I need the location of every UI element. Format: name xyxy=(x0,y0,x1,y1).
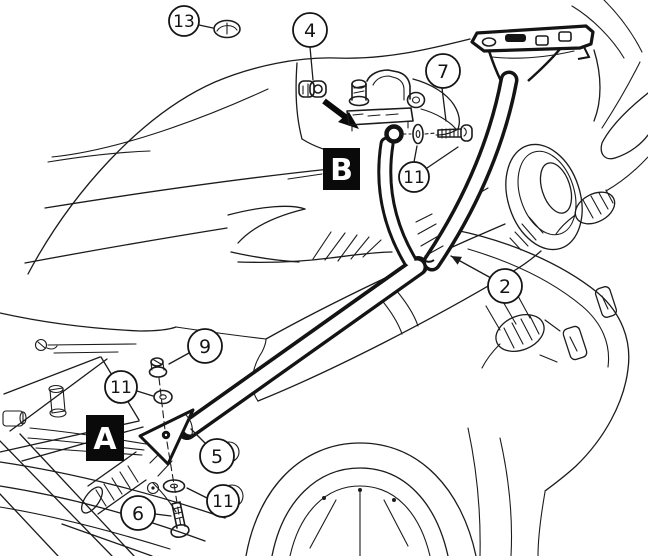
rack-funnel xyxy=(528,49,560,81)
marker-a-label: A xyxy=(93,422,117,457)
arm-eyelet xyxy=(387,127,402,142)
turn-signal xyxy=(490,308,549,358)
clamp-cylinder xyxy=(408,93,425,108)
diagram-page: 13471129115116AB xyxy=(0,0,648,556)
leader-line xyxy=(187,488,207,498)
callout-9-label: 9 xyxy=(199,336,211,358)
frame-lug xyxy=(421,109,458,135)
fender-tip xyxy=(601,93,648,159)
fender-inner-edge xyxy=(468,249,609,367)
leader-line xyxy=(414,146,417,162)
reflector xyxy=(594,285,618,318)
bolt-shaft xyxy=(172,502,185,528)
bracket-connector xyxy=(540,320,560,362)
rim-hole xyxy=(322,496,326,500)
tail-side-line xyxy=(288,174,322,179)
leader-line xyxy=(169,353,189,364)
short-line xyxy=(48,344,136,345)
clamp-strap-inner xyxy=(373,76,404,100)
washer xyxy=(413,125,423,144)
rack-rear-arm-fill xyxy=(432,80,509,262)
panel-top-line xyxy=(45,169,330,208)
callout-13-label: 13 xyxy=(173,12,195,32)
turn-signal-hatch xyxy=(583,190,613,218)
marker-b-label: B xyxy=(330,153,353,188)
tail-right-line xyxy=(606,157,648,191)
callout-2-label: 2 xyxy=(499,276,511,298)
clamp-bolt-flange xyxy=(350,97,369,106)
leader-line xyxy=(427,147,458,168)
leader-line xyxy=(155,514,171,516)
reflector xyxy=(562,325,588,361)
fender-outer-edge xyxy=(455,230,629,491)
washer-hole xyxy=(416,131,420,138)
tail-right-line xyxy=(594,50,600,121)
callout-6-label: 6 xyxy=(132,503,144,525)
rim-hole xyxy=(358,488,362,492)
rack-funnel xyxy=(489,51,501,81)
seat-seam-line xyxy=(52,89,268,157)
cap-part-detail xyxy=(217,23,237,34)
tire-outline xyxy=(246,443,476,556)
leader-line xyxy=(137,391,153,396)
rack-main-tube-fill xyxy=(190,267,417,428)
exhaust-pipe-line xyxy=(0,434,152,556)
tail-side-line xyxy=(296,63,302,139)
panel-chevron xyxy=(231,252,299,262)
hatch-line xyxy=(363,240,381,257)
leader-line xyxy=(442,88,446,121)
leader-line xyxy=(310,47,313,80)
callout-7-label: 7 xyxy=(437,61,449,83)
callout-4-label: 4 xyxy=(304,20,316,42)
panel-chevron xyxy=(238,209,305,243)
seat-edge-line xyxy=(48,151,150,162)
leader-line xyxy=(199,25,213,28)
plate-underside-line xyxy=(492,51,574,58)
fender-surface-line xyxy=(468,428,545,556)
bolt-part-9 xyxy=(150,358,167,377)
washer xyxy=(154,391,172,404)
callout-11c-label: 11 xyxy=(212,492,234,512)
turn-signal-hatch xyxy=(504,316,539,348)
annotations: 13471129115116AB xyxy=(86,6,522,530)
clamp-base xyxy=(347,108,413,125)
callout-5-label: 5 xyxy=(211,446,223,468)
muffler-outlet xyxy=(535,159,578,217)
circlip-dot xyxy=(151,486,154,489)
bolt-flange xyxy=(150,367,167,377)
reflector-slot xyxy=(570,337,577,351)
panel-mid-line xyxy=(25,228,227,263)
turn-signal-stem xyxy=(482,344,500,368)
well-nut-hole xyxy=(314,85,322,93)
plate-slot xyxy=(505,34,526,42)
bolt-head-detail xyxy=(464,128,466,136)
well-nut-detail xyxy=(303,84,308,96)
gusset-hole-center xyxy=(165,434,167,436)
hardware-parts xyxy=(150,21,473,539)
parts-diagram: 13471129115116AB xyxy=(0,0,648,556)
callout-11a-label: 11 xyxy=(403,168,425,188)
seat-base-line xyxy=(0,313,176,331)
bolt-head xyxy=(170,523,190,538)
callout-11b-label: 11 xyxy=(110,378,132,398)
short-line xyxy=(54,352,118,353)
frame-screw-detail xyxy=(38,342,57,349)
turn-signal xyxy=(570,186,620,230)
panel-chevron xyxy=(228,206,305,215)
clamp-cylinder-hole xyxy=(413,97,420,103)
rim-hole xyxy=(392,498,396,502)
